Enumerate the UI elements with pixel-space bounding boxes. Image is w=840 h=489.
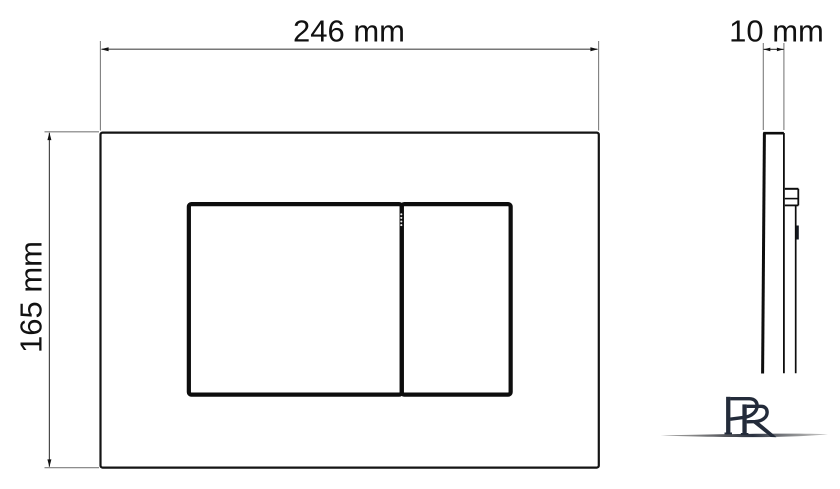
svg-text:165 mm: 165 mm bbox=[14, 241, 49, 353]
svg-text:10 mm: 10 mm bbox=[729, 14, 824, 49]
svg-text:246 mm: 246 mm bbox=[293, 14, 405, 49]
